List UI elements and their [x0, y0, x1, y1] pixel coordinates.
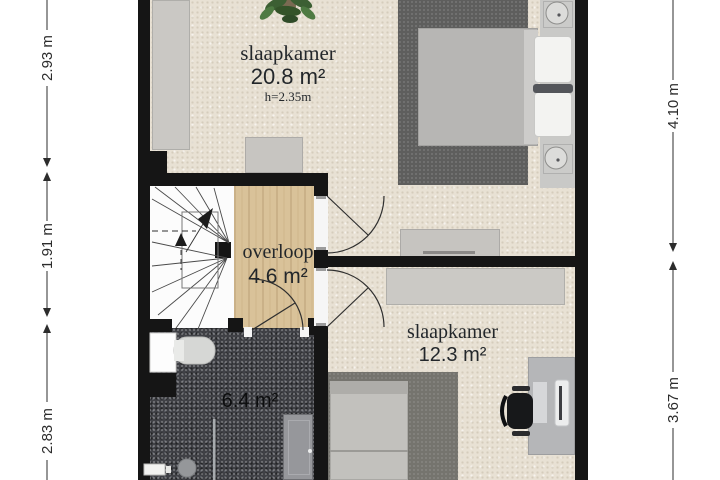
- shower-control: [144, 464, 165, 475]
- dim-left-2: 1.91 m: [39, 223, 56, 269]
- room-area: 12.3 m²: [365, 344, 540, 367]
- shower-glass-panel: [213, 419, 216, 480]
- dim-right-1: 4.10 m: [665, 83, 682, 129]
- shower-head: [166, 466, 171, 473]
- room-name: overloop: [213, 242, 343, 263]
- room-area: 6.4 m²: [200, 390, 300, 412]
- room-label-bedroom1: slaapkamer 20.8 m² h=2.35m: [193, 42, 383, 104]
- laptop: [555, 380, 569, 426]
- toilet: [150, 333, 215, 372]
- floor-plan: 2.93 m 1.91 m 2.83 m 4.10 m 3.67 m slaap…: [0, 0, 720, 480]
- room-name: slaapkamer: [193, 42, 383, 64]
- room-label-bathroom: 6.4 m²: [200, 390, 300, 412]
- shower: [144, 419, 216, 480]
- room-label-landing: overloop 4.6 m²: [213, 242, 343, 288]
- dim-right-2: 3.67 m: [665, 377, 682, 423]
- stair-direction-arrows: [175, 208, 213, 246]
- shower-drain: [178, 459, 196, 477]
- room-area: 4.6 m²: [213, 265, 343, 288]
- office-chair: [502, 386, 533, 436]
- ceiling-height-note: h=2.35m: [193, 90, 383, 104]
- lamp-icon: [546, 2, 568, 24]
- lamp-icon: [545, 147, 567, 169]
- bedside-lamps: [545, 2, 568, 169]
- room-label-bedroom2: slaapkamer 12.3 m²: [365, 322, 540, 367]
- dim-left-1: 2.93 m: [39, 35, 56, 81]
- dimension-arrows: [43, 158, 677, 333]
- dim-left-3: 2.83 m: [39, 408, 56, 454]
- room-name: slaapkamer: [365, 322, 540, 343]
- plant-icon: [258, 0, 318, 23]
- room-area: 20.8 m²: [193, 65, 383, 89]
